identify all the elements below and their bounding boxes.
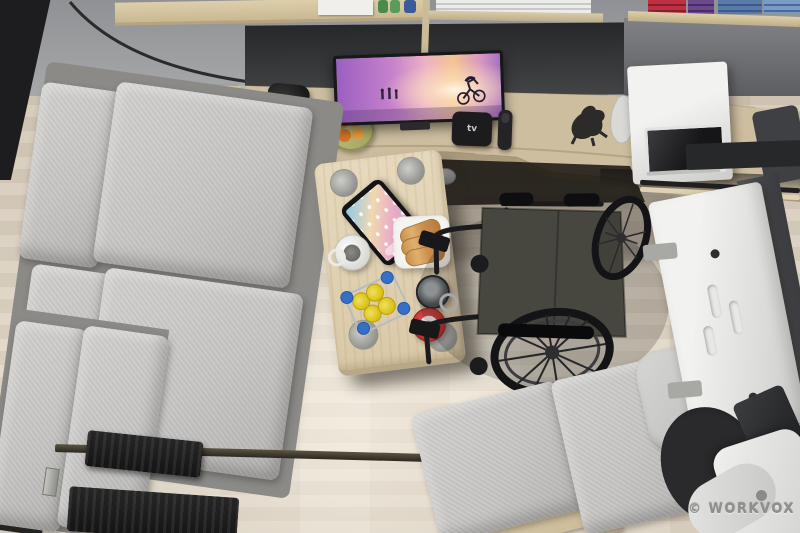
- machine-vent-slot: [702, 325, 718, 356]
- wheelchair-handgrip: [499, 192, 533, 206]
- watermark: © WORKVOX: [688, 502, 795, 517]
- machine-vent-slot: [728, 300, 744, 335]
- machine-clamp: [667, 380, 702, 399]
- machine-bolt: [710, 249, 721, 260]
- machine-vent-slot: [706, 284, 722, 319]
- wheelchair-handgrip: [563, 193, 599, 207]
- machine-clamp: [643, 242, 678, 261]
- lift-machine-top-unit: [686, 140, 800, 170]
- scooter-hub-hole: [756, 490, 767, 501]
- scene-canvas: tv: [0, 0, 800, 533]
